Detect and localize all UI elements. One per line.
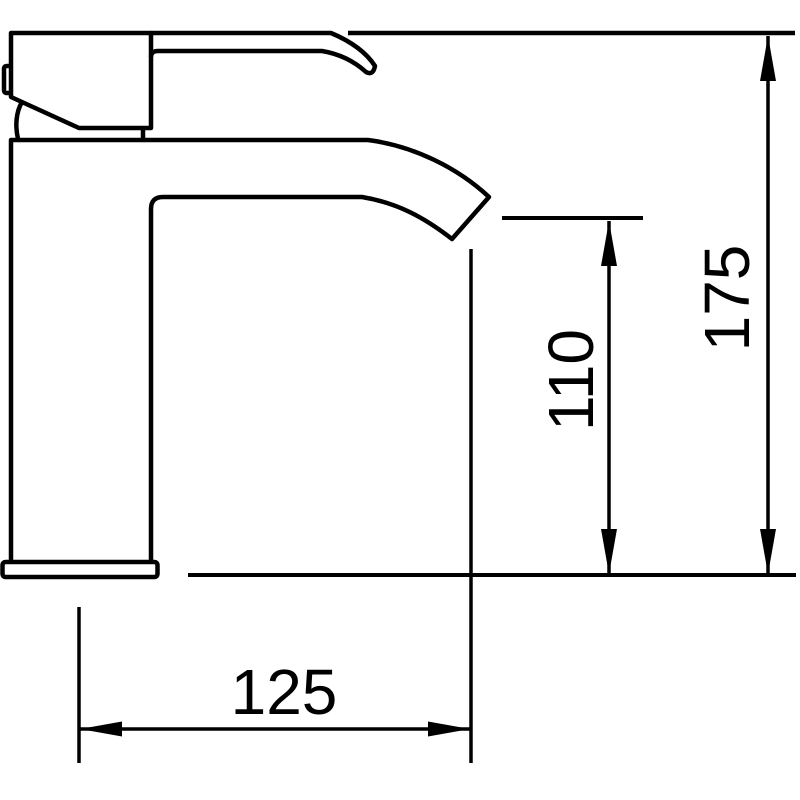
arrow-up-icon	[760, 36, 776, 81]
dimension-label-spout-reach: 125	[231, 656, 338, 728]
dimension-label-overall-height: 175	[691, 245, 763, 352]
technical-drawing-page: 175 110 125	[0, 0, 800, 800]
faucet-base-plate	[3, 562, 158, 577]
dimension-lines	[79, 33, 796, 763]
technical-drawing-canvas: 175 110 125	[0, 0, 800, 800]
faucet-lever-block	[11, 33, 151, 128]
dimension-label-spout-height: 110	[535, 329, 607, 431]
faucet-cartridge-arc	[16, 102, 22, 139]
faucet-body-spout	[11, 140, 489, 562]
arrow-right-icon	[428, 722, 470, 737]
arrow-down-icon	[601, 529, 617, 574]
faucet-lever-arm	[151, 33, 375, 73]
arrow-down-icon	[760, 529, 776, 574]
arrow-up-icon	[601, 221, 617, 266]
faucet-outline	[3, 33, 490, 577]
arrow-left-icon	[80, 722, 122, 737]
